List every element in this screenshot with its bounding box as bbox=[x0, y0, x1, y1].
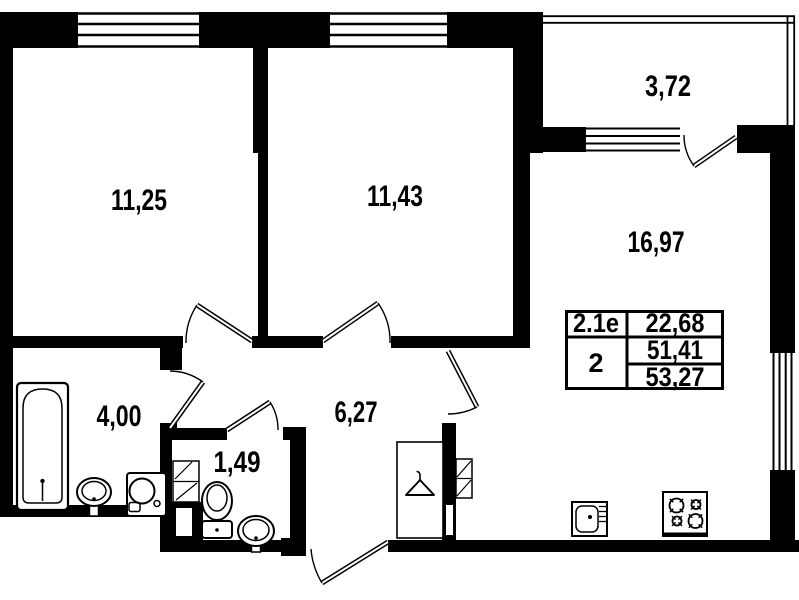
kitchen-sink-icon bbox=[572, 502, 607, 536]
area-without-balcony-value: 51,41 bbox=[647, 335, 703, 365]
window-right bbox=[774, 353, 792, 470]
door-entrance bbox=[311, 542, 388, 583]
living-area-value: 22,68 bbox=[646, 308, 705, 338]
room-count-value: 2 bbox=[588, 348, 603, 378]
door-bedroom-2 bbox=[323, 303, 390, 343]
label-wc-area: 1,49 bbox=[214, 446, 261, 479]
label-kitchen-living-area: 16,97 bbox=[628, 226, 685, 259]
toilet-icon bbox=[202, 482, 232, 538]
label-hallway-area: 6,27 bbox=[335, 396, 378, 429]
floor-plan-drawing: 11,25 11,43 3,72 16,97 4,00 1,49 6,27 2.… bbox=[0, 0, 799, 600]
door-wc bbox=[227, 402, 278, 430]
label-bedroom-1-area: 11,25 bbox=[111, 184, 167, 217]
door-bathroom bbox=[170, 371, 203, 428]
label-bathroom-area: 4,00 bbox=[97, 400, 142, 433]
door-bedroom-1 bbox=[186, 305, 252, 343]
stove-icon bbox=[663, 492, 707, 536]
vent-hatch-wc bbox=[173, 461, 199, 502]
label-balcony-area: 3,72 bbox=[645, 70, 691, 103]
floor-plan: 11,25 11,43 3,72 16,97 4,00 1,49 6,27 2.… bbox=[0, 0, 799, 600]
window-balcony bbox=[586, 129, 680, 151]
door-balcony bbox=[684, 135, 736, 166]
vent-hatch-hall bbox=[456, 459, 472, 498]
window-top-left bbox=[78, 14, 199, 47]
unit-type-value: 2.1е bbox=[573, 308, 619, 338]
apartment-info-table: 2.1е 22,68 2 51,41 53,27 bbox=[565, 308, 724, 392]
door-kitchen bbox=[448, 351, 477, 414]
total-area-value: 53,27 bbox=[646, 362, 705, 392]
window-top-middle bbox=[330, 14, 447, 47]
washing-machine-icon bbox=[127, 473, 166, 516]
label-bedroom-2-area: 11,43 bbox=[367, 180, 423, 213]
wardrobe-hanger-icon bbox=[397, 442, 443, 538]
bathtub-icon bbox=[17, 383, 68, 510]
